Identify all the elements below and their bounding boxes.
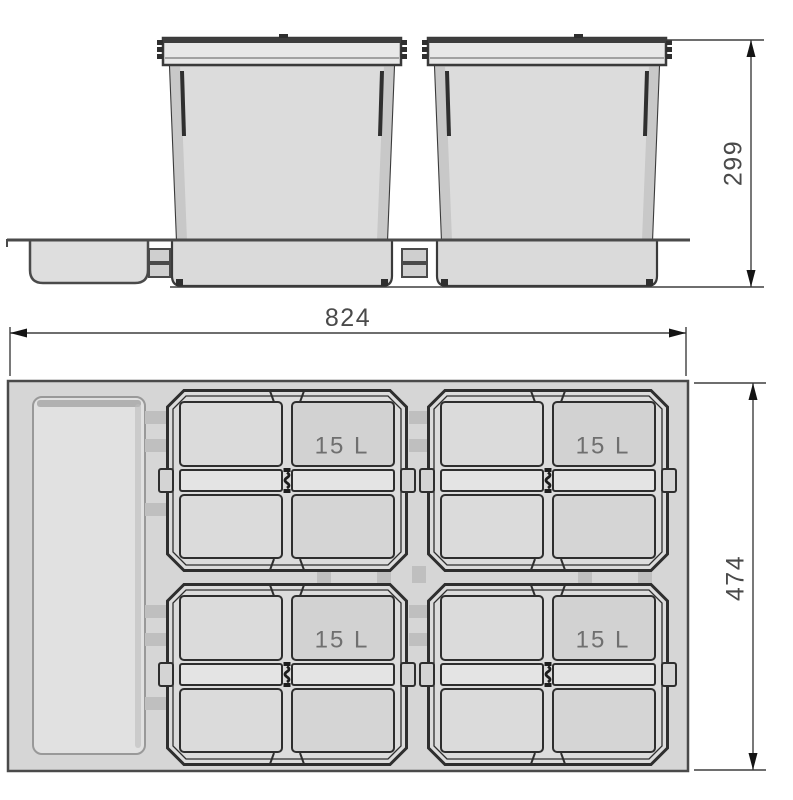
bin-lid-notch xyxy=(279,34,288,38)
bin-capacity-label: 15 L xyxy=(576,626,631,653)
tray-plan xyxy=(33,397,145,754)
bin-base xyxy=(437,241,657,286)
bin-foot-right xyxy=(646,279,653,286)
tray-front xyxy=(30,241,148,283)
bin-rail-right xyxy=(645,71,647,136)
technical-drawing-canvas: 299 824 xyxy=(0,0,793,800)
plan-view: 15 L 15 L 15 L 15 L xyxy=(8,381,688,771)
bin-front-right xyxy=(422,34,672,286)
bin-lid-ribs-left xyxy=(422,40,428,59)
arrow-up-icon xyxy=(747,40,756,57)
dimension-width-label: 824 xyxy=(325,304,371,332)
bin-rail-left xyxy=(182,71,184,136)
bin-lid-ribs-left xyxy=(157,40,163,59)
bin-plan-bottom-right xyxy=(420,585,676,765)
bin-capacity-label: 15 L xyxy=(576,432,631,459)
front-elevation-view xyxy=(7,34,764,287)
dimension-depth-label: 474 xyxy=(722,555,750,601)
bin-front-left xyxy=(157,34,407,286)
bin-plan-top-right xyxy=(420,391,676,571)
bin-base xyxy=(172,241,392,286)
bin-foot-right xyxy=(381,279,388,286)
bin-lid-ribs-right xyxy=(666,40,672,59)
bin-rail-right xyxy=(380,71,382,136)
dimension-depth-474: 474 xyxy=(694,383,766,770)
arrow-down-icon xyxy=(747,270,756,287)
arrow-right-icon xyxy=(669,329,686,338)
bin-foot-left xyxy=(441,279,448,286)
bin-body xyxy=(435,65,659,240)
dimension-height-label: 299 xyxy=(720,140,748,186)
bin-foot-left xyxy=(176,279,183,286)
arrow-up-icon xyxy=(749,383,758,400)
bin-lid-top-band xyxy=(163,38,401,43)
bin-capacity-label: 15 L xyxy=(315,626,370,653)
bin-plan-top-left xyxy=(159,391,415,571)
dimension-height-299: 299 xyxy=(666,40,764,287)
connector-ladder-center xyxy=(402,249,427,277)
tray-right-shadow xyxy=(135,404,141,748)
connector-ladder-left xyxy=(149,249,170,277)
bin-plan-bottom-left xyxy=(159,585,415,765)
dimension-width-824: 824 xyxy=(10,304,686,376)
bin-rail-left xyxy=(447,71,449,136)
arrow-down-icon xyxy=(749,753,758,770)
bin-body xyxy=(170,65,394,240)
bin-lid-ribs-right xyxy=(401,40,407,59)
waste-bin-dimension-drawing: 299 824 xyxy=(0,0,793,800)
tray-top-shadow xyxy=(37,400,141,407)
bin-capacity-label: 15 L xyxy=(315,432,370,459)
bin-lid-notch xyxy=(574,34,583,38)
arrow-left-icon xyxy=(10,329,27,338)
bin-lid-top-band xyxy=(428,38,666,43)
